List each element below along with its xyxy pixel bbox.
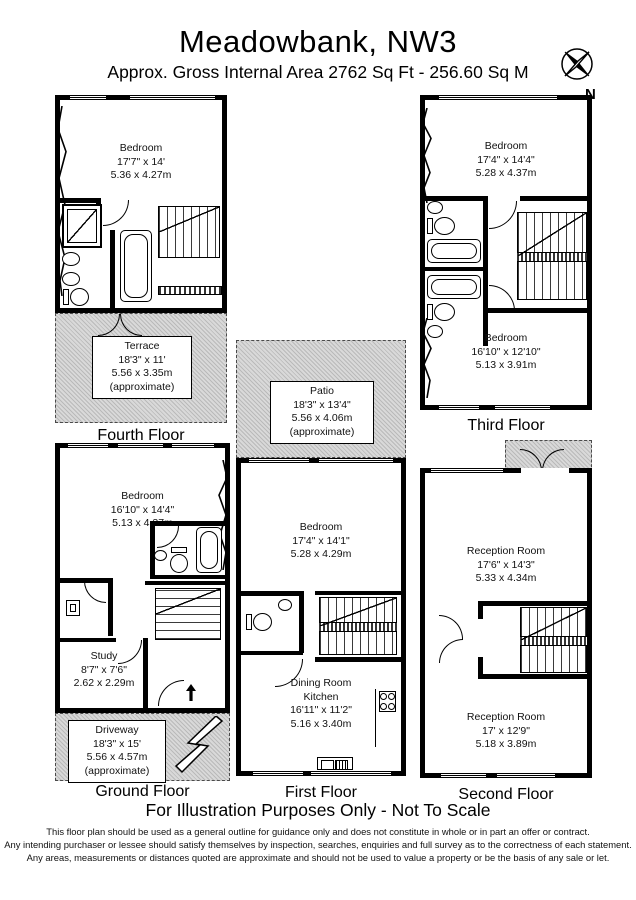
room-label-reception-front: Reception Room 17'6" x 14'3" 5.33 x 4.34…: [425, 545, 587, 586]
door-arc: [439, 639, 463, 663]
door-arc: [439, 615, 463, 639]
window: [118, 443, 163, 448]
window: [70, 95, 106, 100]
hob-icon: [379, 691, 396, 712]
patio-label: Patio 18'3" x 13'4" 5.56 x 4.06m (approx…: [270, 381, 374, 444]
driveway-area: Driveway 18'3" x 15' 5.56 x 4.57m (appro…: [55, 713, 230, 781]
window: [495, 405, 550, 410]
compass-icon: [551, 40, 603, 92]
entrance-arrow-icon: [186, 684, 196, 702]
window: [431, 468, 503, 473]
door-arc: [157, 526, 179, 548]
wall: [315, 657, 401, 662]
window: [441, 773, 486, 778]
room-label-reception-back: Reception Room 17' x 12'9" 5.18 x 3.89m: [425, 711, 587, 752]
floor-label-third: Third Floor: [420, 417, 592, 435]
footer-disclaimer-line: Any areas, measurements or distances quo…: [0, 852, 636, 863]
window: [130, 95, 215, 100]
wall: [315, 591, 401, 595]
fourth-floor-plan: Bedroom 17'7" x 14' 5.36 x 4.27m: [55, 95, 227, 447]
bathtub-icon: [427, 275, 481, 299]
shower-icon: [62, 204, 102, 248]
room-label-bedroom-back: Bedroom 16'10" x 12'10" 5.13 x 3.91m: [425, 332, 587, 373]
room-label-dining-kitchen: Dining Room Kitchen 16'11" x 11'2" 5.16 …: [241, 677, 401, 732]
wall: [425, 267, 483, 271]
wall: [241, 591, 301, 596]
door-arc: [120, 314, 142, 336]
zigzag-window: [421, 318, 433, 398]
staircase-landing: [158, 286, 222, 295]
wall: [150, 521, 155, 579]
ground-floor-plan: Bedroom 16'10" x 14'4" 5.13 x 4.37m: [55, 443, 230, 798]
room-label-bedroom: Bedroom 17'7" x 14' 5.36 x 4.27m: [60, 142, 222, 183]
window: [319, 458, 393, 463]
third-floor-building: Bedroom 17'4" x 14'4" 5.28 x 4.37m: [420, 95, 592, 410]
footer-disclaimer-line: Any intending purchaser or lessee should…: [0, 839, 636, 850]
wall: [110, 230, 115, 308]
footer-disclaimer-line: This floor plan should be used as a gene…: [0, 826, 636, 837]
toilet-icon: [63, 288, 89, 306]
second-floor-plan: Reception Room 17'6" x 14'3" 5.33 x 4.34…: [420, 440, 592, 800]
fourth-floor-building: Bedroom 17'7" x 14' 5.36 x 4.27m: [55, 95, 227, 313]
window: [253, 771, 303, 776]
door-arc: [98, 314, 120, 336]
bathtub-icon: [120, 230, 152, 302]
window: [439, 95, 557, 100]
wall: [299, 591, 304, 653]
wall: [60, 638, 116, 642]
wall: [480, 601, 587, 606]
footer-heading: For Illustration Purposes Only - Not To …: [0, 800, 636, 821]
sink-icon: [154, 550, 167, 561]
kitchen-sink-icon: [317, 757, 353, 770]
bathtub-icon: [427, 239, 481, 263]
wall: [480, 674, 587, 679]
door-arc: [103, 200, 129, 226]
driveway-arrow-icon: [172, 716, 226, 778]
window: [497, 773, 555, 778]
sink-icon: [427, 201, 443, 214]
staircase: [155, 588, 221, 640]
staircase: [517, 212, 587, 300]
terrace-label: Terrace 18'3" x 11' 5.56 x 3.35m (approx…: [92, 336, 192, 399]
door-arc: [84, 581, 106, 603]
sink-icon: [278, 599, 292, 611]
wall: [145, 581, 225, 585]
window: [172, 443, 214, 448]
driveway-label: Driveway 18'3" x 15' 5.56 x 4.57m (appro…: [68, 720, 166, 783]
room-label-study: Study 8'7" x 7'6" 2.62 x 2.29m: [60, 650, 148, 691]
wall-sink-icon: [66, 600, 80, 616]
room-label-bedroom: Bedroom 17'4" x 14'1" 5.28 x 4.29m: [241, 521, 401, 562]
wall: [478, 601, 483, 619]
terrace-area: Terrace 18'3" x 11' 5.56 x 3.35m (approx…: [55, 313, 227, 423]
second-floor-building: Reception Room 17'6" x 14'3" 5.33 x 4.34…: [420, 468, 592, 778]
window: [249, 458, 309, 463]
toilet-icon: [427, 217, 455, 235]
wall: [150, 575, 225, 579]
counter-line: [375, 689, 376, 747]
window: [439, 405, 479, 410]
door-arc: [489, 201, 517, 229]
window: [68, 443, 108, 448]
door-arc: [489, 285, 515, 311]
wall: [483, 196, 488, 346]
wall: [108, 578, 113, 636]
entrance-door-arc: [158, 680, 184, 706]
first-floor-building: Bedroom 17'4" x 14'1" 5.28 x 4.29m Dinin…: [236, 458, 406, 776]
patio-area: Patio 18'3" x 13'4" 5.56 x 4.06m (approx…: [236, 340, 406, 458]
staircase: [158, 206, 220, 258]
page-title: Meadowbank, NW3: [0, 24, 636, 60]
toilet-icon: [246, 613, 272, 631]
floor-label-ground: Ground Floor: [55, 783, 230, 801]
wall: [520, 196, 587, 201]
floorplan-page: Meadowbank, NW3 Approx. Gross Internal A…: [0, 0, 636, 900]
door-opening: [521, 468, 569, 473]
bathtub-icon: [196, 527, 222, 573]
wall: [241, 651, 303, 655]
staircase: [520, 607, 587, 673]
first-floor-plan: Patio 18'3" x 13'4" 5.56 x 4.06m (approx…: [236, 340, 406, 798]
sink-icon: [62, 272, 80, 286]
sink-icon: [62, 252, 80, 266]
window: [311, 771, 391, 776]
toilet-icon: [170, 547, 188, 573]
page-subtitle: Approx. Gross Internal Area 2762 Sq Ft -…: [0, 62, 636, 83]
staircase: [319, 597, 397, 655]
ground-floor-building: Bedroom 16'10" x 14'4" 5.13 x 4.37m: [55, 443, 230, 713]
third-floor-plan: Bedroom 17'4" x 14'4" 5.28 x 4.37m: [420, 95, 592, 435]
room-label-bedroom-front: Bedroom 17'4" x 14'4" 5.28 x 4.37m: [425, 140, 587, 181]
wall: [60, 198, 96, 203]
